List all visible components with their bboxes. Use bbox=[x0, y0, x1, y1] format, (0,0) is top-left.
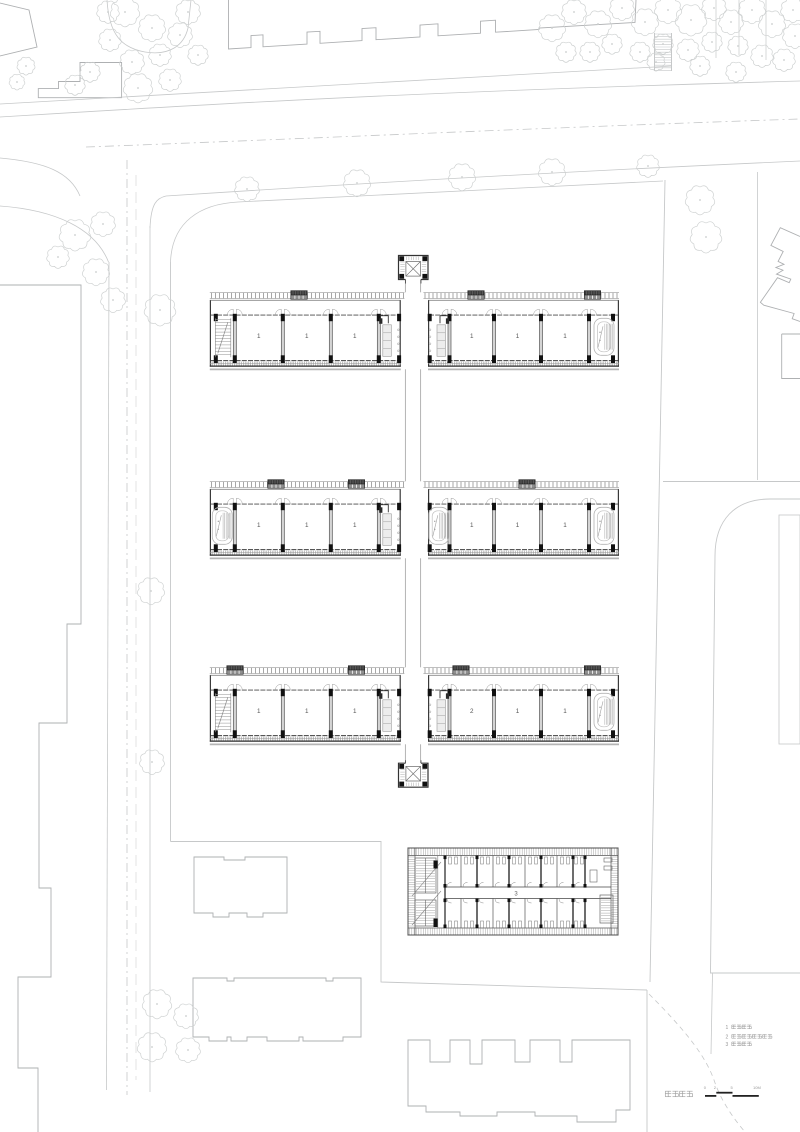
svg-text:1: 1 bbox=[563, 333, 567, 340]
svg-text:1: 1 bbox=[353, 708, 357, 715]
svg-text:1: 1 bbox=[353, 333, 357, 340]
svg-text:1: 1 bbox=[305, 522, 309, 529]
svg-text:1: 1 bbox=[470, 333, 474, 340]
svg-text:1: 1 bbox=[257, 708, 261, 715]
svg-text:1: 1 bbox=[305, 708, 309, 715]
svg-text:1: 1 bbox=[516, 708, 520, 715]
svg-text:1: 1 bbox=[563, 708, 567, 715]
svg-text:1: 1 bbox=[470, 522, 474, 529]
svg-text:3: 3 bbox=[726, 1042, 729, 1048]
svg-text:1: 1 bbox=[726, 1025, 729, 1031]
svg-text:2: 2 bbox=[726, 1035, 729, 1041]
svg-text:1: 1 bbox=[257, 522, 261, 529]
svg-text:1: 1 bbox=[516, 333, 520, 340]
svg-text:1: 1 bbox=[563, 522, 567, 529]
svg-text:1: 1 bbox=[257, 333, 261, 340]
svg-text:10M: 10M bbox=[753, 1085, 761, 1090]
svg-text:2: 2 bbox=[470, 708, 474, 715]
svg-text:1: 1 bbox=[353, 522, 357, 529]
svg-text:1: 1 bbox=[305, 333, 309, 340]
svg-text:1: 1 bbox=[516, 522, 520, 529]
